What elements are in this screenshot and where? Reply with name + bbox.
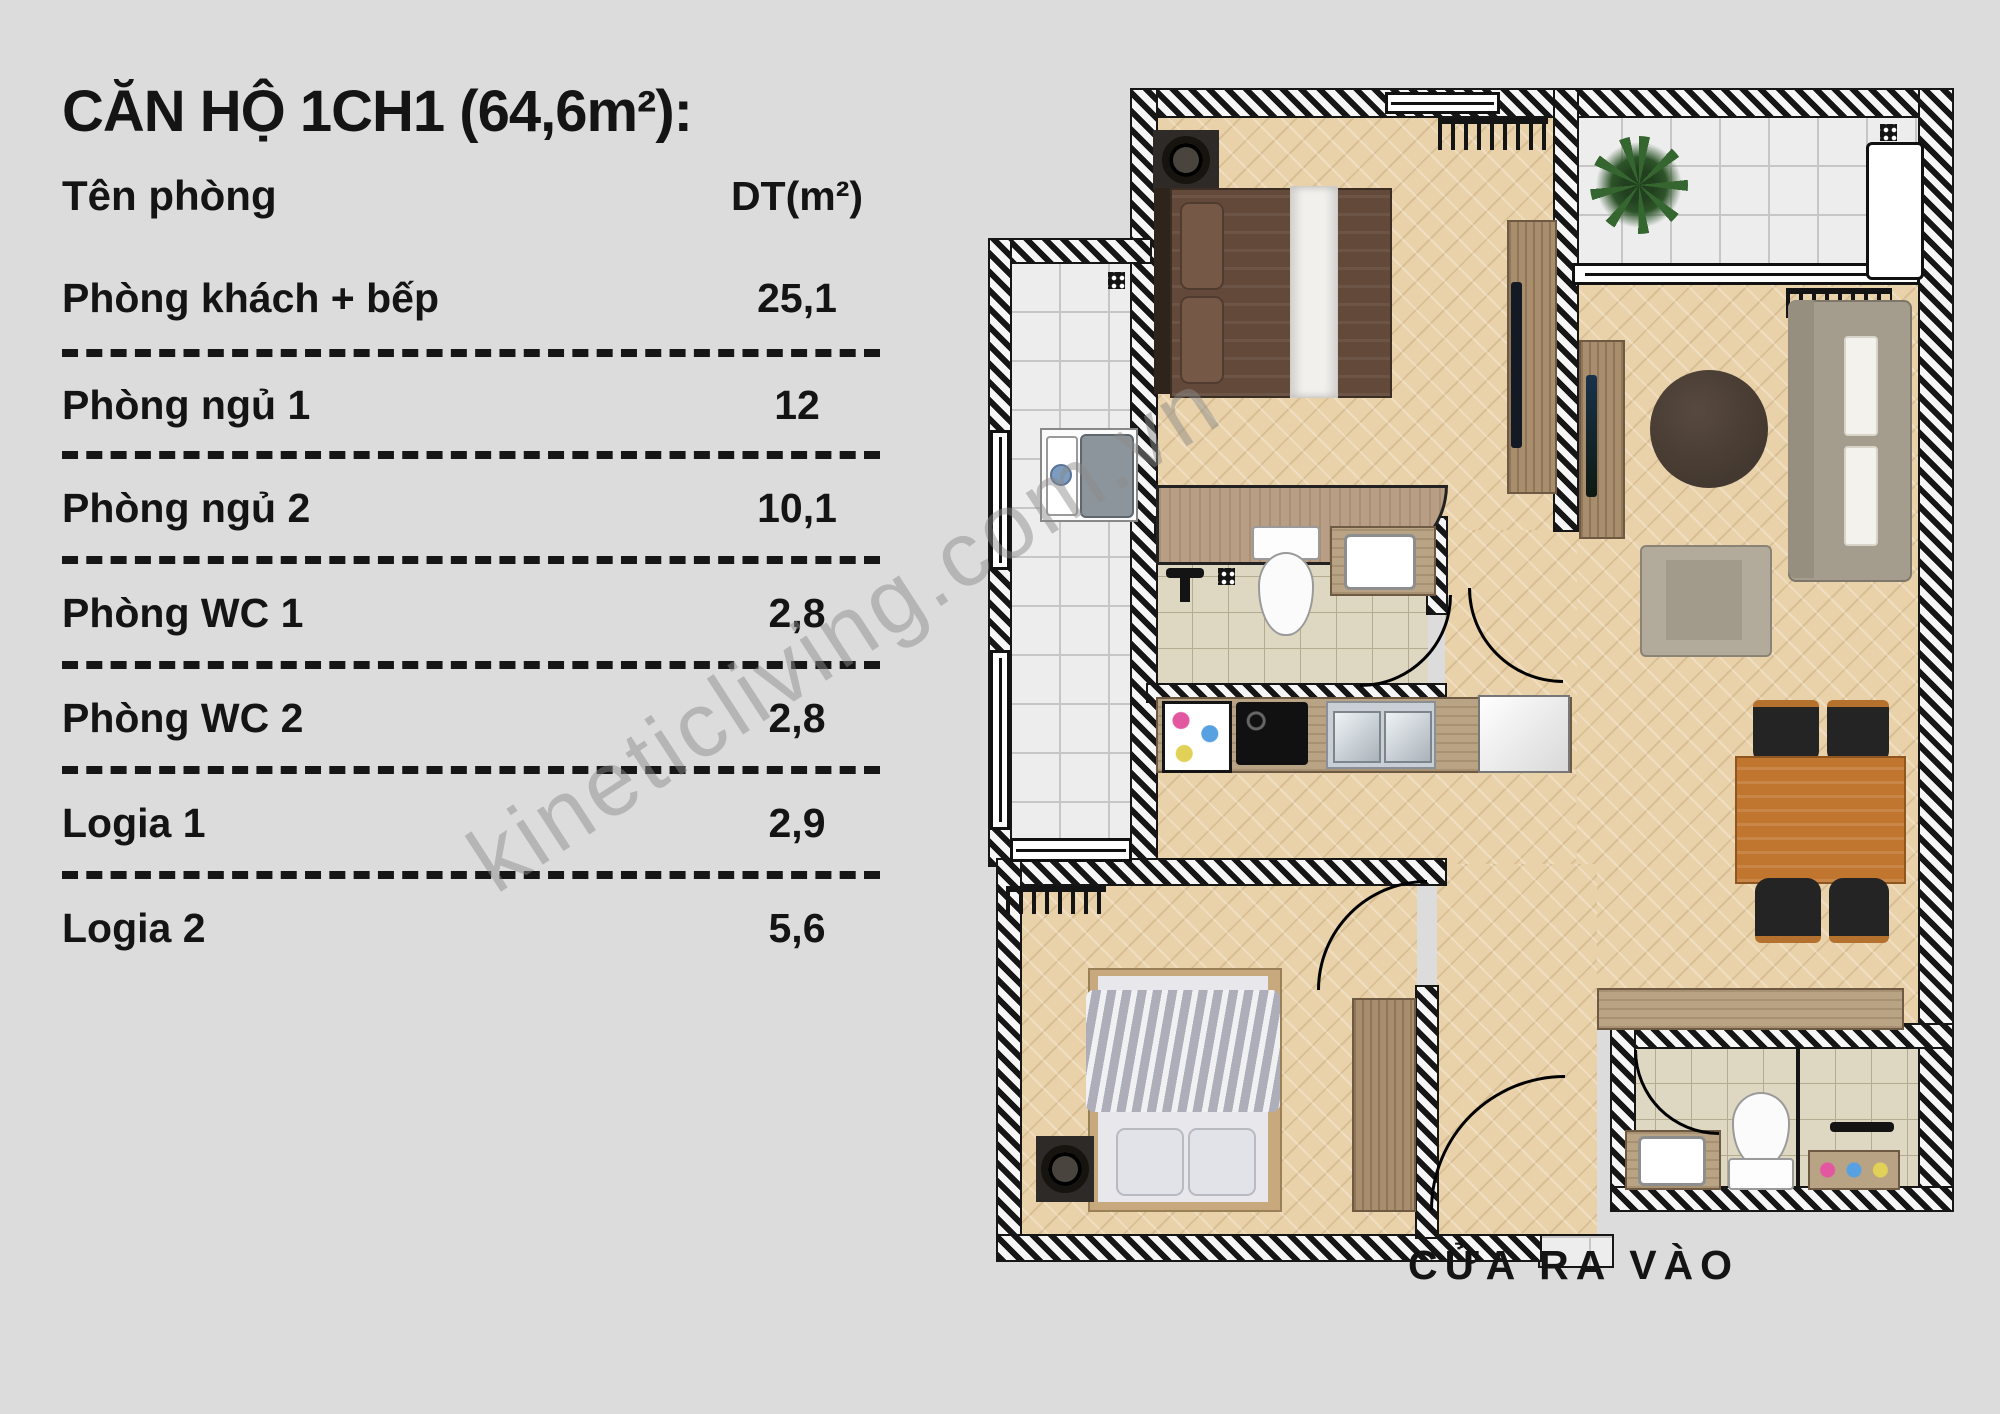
wall-bedroom2-left [998, 860, 1020, 1260]
dining-table [1735, 756, 1906, 884]
shower-icon-stem [1180, 576, 1190, 602]
armchair-seat [1666, 560, 1742, 640]
sofa-seat-edge [1788, 300, 1814, 578]
logia2-unit [1866, 142, 1924, 280]
floor-plan [990, 90, 1962, 1270]
toilet-icon [1728, 1158, 1794, 1190]
column-area-header: DT(m²) [702, 170, 892, 222]
page-title: CĂN HỘ 1CH1 (64,6m²): [62, 78, 692, 145]
bed2-duvet [1086, 990, 1280, 1112]
speaker-icon [1036, 1136, 1094, 1202]
bed1-pillow [1180, 202, 1224, 290]
logia1-window-lower [990, 650, 1010, 830]
room-area: 10,1 [702, 482, 892, 534]
bed2-pillow [1188, 1128, 1256, 1196]
row-divider [62, 871, 880, 879]
wc2-divider [1796, 1047, 1800, 1188]
room-name: Phòng ngủ 1 [62, 379, 310, 431]
plant-icon [1590, 136, 1688, 234]
room-area: 12 [702, 379, 892, 431]
sink-icon [1638, 1136, 1706, 1186]
hanger-rail-icon [1006, 886, 1106, 914]
column-room-header: Tên phòng [62, 170, 277, 222]
room-area: 5,6 [702, 902, 892, 954]
drain-icon [1218, 568, 1235, 585]
shower-icon [1830, 1122, 1894, 1132]
row-divider [62, 766, 880, 774]
hall-console [1597, 988, 1904, 1030]
room-name: Phòng WC 1 [62, 587, 303, 639]
room-name: Logia 2 [62, 902, 206, 954]
wall-top [1140, 90, 1952, 116]
fridge-icon [1478, 695, 1570, 773]
tv-icon [1586, 375, 1597, 497]
door-arc-icon [1360, 595, 1452, 687]
row-divider [62, 556, 880, 564]
bed1-runner [1290, 186, 1338, 398]
bedroom1-sliding-door [1385, 92, 1500, 114]
hanger-rail-icon [1438, 118, 1548, 150]
room-area: 2,9 [702, 797, 892, 849]
wall-wc2-bottom [1612, 1188, 1952, 1210]
wall-bedroom2-top [998, 860, 1445, 884]
shower-shelf [1808, 1150, 1900, 1190]
room-name: Phòng khách + bếp [62, 272, 439, 324]
entrance-label: CỬA RA VÀO [1408, 1242, 1739, 1289]
cooktop-icon [1236, 702, 1308, 765]
drain-icon [1108, 272, 1125, 289]
room-name: Phòng ngủ 2 [62, 482, 310, 534]
dining-chair [1829, 878, 1889, 943]
table-header: Tên phòng DT(m²) [62, 170, 892, 222]
table-row: Phòng ngủ 2 10,1 [62, 482, 892, 534]
dining-chair [1755, 878, 1821, 943]
sofa-cushion [1844, 446, 1878, 546]
table-row: Phòng khách + bếp 25,1 [62, 272, 892, 324]
sink-basin [1333, 711, 1381, 763]
coffee-table [1650, 370, 1768, 488]
room-name: Logia 1 [62, 797, 206, 849]
wardrobe [1352, 998, 1416, 1212]
wall-hall-living [1555, 90, 1577, 530]
double-sink-icon [1326, 701, 1436, 769]
row-divider [62, 349, 880, 357]
table-row: Logia 2 5,6 [62, 902, 892, 954]
sofa-cushion [1844, 336, 1878, 436]
tv-icon [1511, 282, 1522, 448]
logia1-window-bottom [1010, 838, 1132, 862]
room-area: 25,1 [702, 272, 892, 324]
bed2-pillow [1116, 1128, 1184, 1196]
kitchen-corridor-floor [1156, 769, 1577, 864]
row-divider [62, 451, 880, 459]
wall-logia1-top [990, 240, 1150, 262]
drain-icon [1880, 124, 1897, 141]
table-row: Phòng ngủ 1 12 [62, 379, 892, 431]
sink-icon [1344, 534, 1416, 590]
dish-cabinet [1162, 701, 1232, 773]
room-name: Phòng WC 2 [62, 692, 303, 744]
sink-basin [1384, 711, 1432, 763]
speaker-icon [1153, 130, 1219, 190]
